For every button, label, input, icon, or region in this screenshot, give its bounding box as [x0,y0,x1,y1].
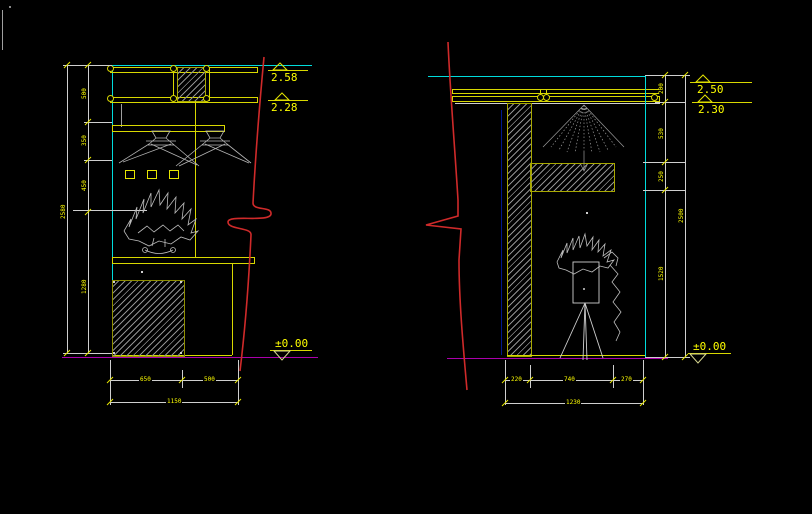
red-break-line-left [228,57,271,371]
ceiling-light-rays-icon [543,105,624,171]
cad-canvas[interactable]: 500 350 450 1280 2580 650 500 1150 2.58 … [0,0,812,514]
level-triangle-icon [273,63,712,102]
plant-left [124,190,198,254]
plant-stand [560,262,603,360]
red-break-line-right [426,42,467,390]
linework-overlay [0,0,812,514]
plant-right [557,234,621,341]
datum-triangle-icon [274,351,706,363]
pendant-lamp-icon [119,131,199,166]
dim-tick-marks [64,62,688,406]
